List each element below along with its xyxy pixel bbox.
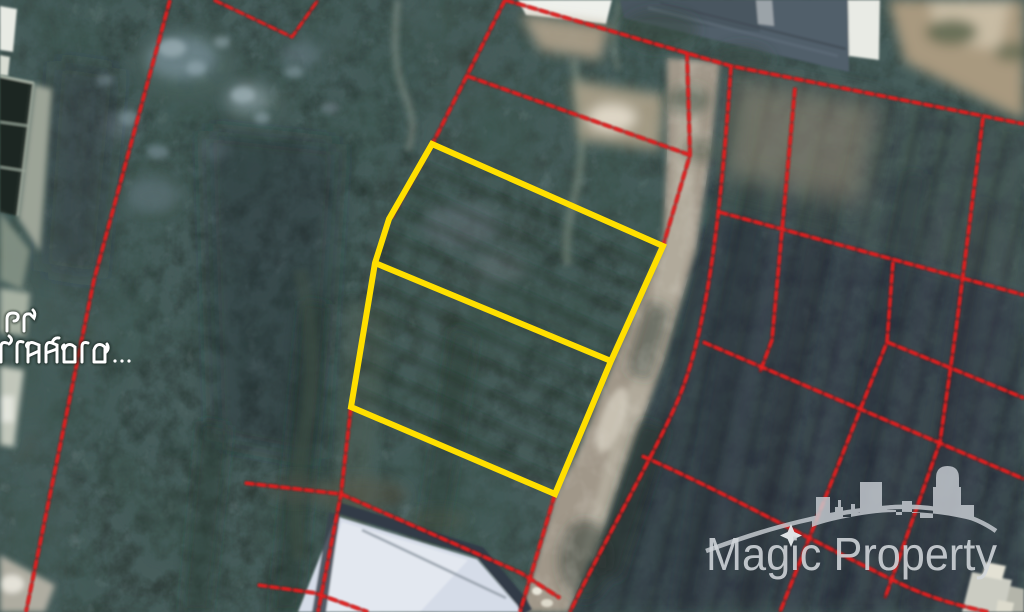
svg-text:Magic Property: Magic Property [706, 528, 997, 580]
